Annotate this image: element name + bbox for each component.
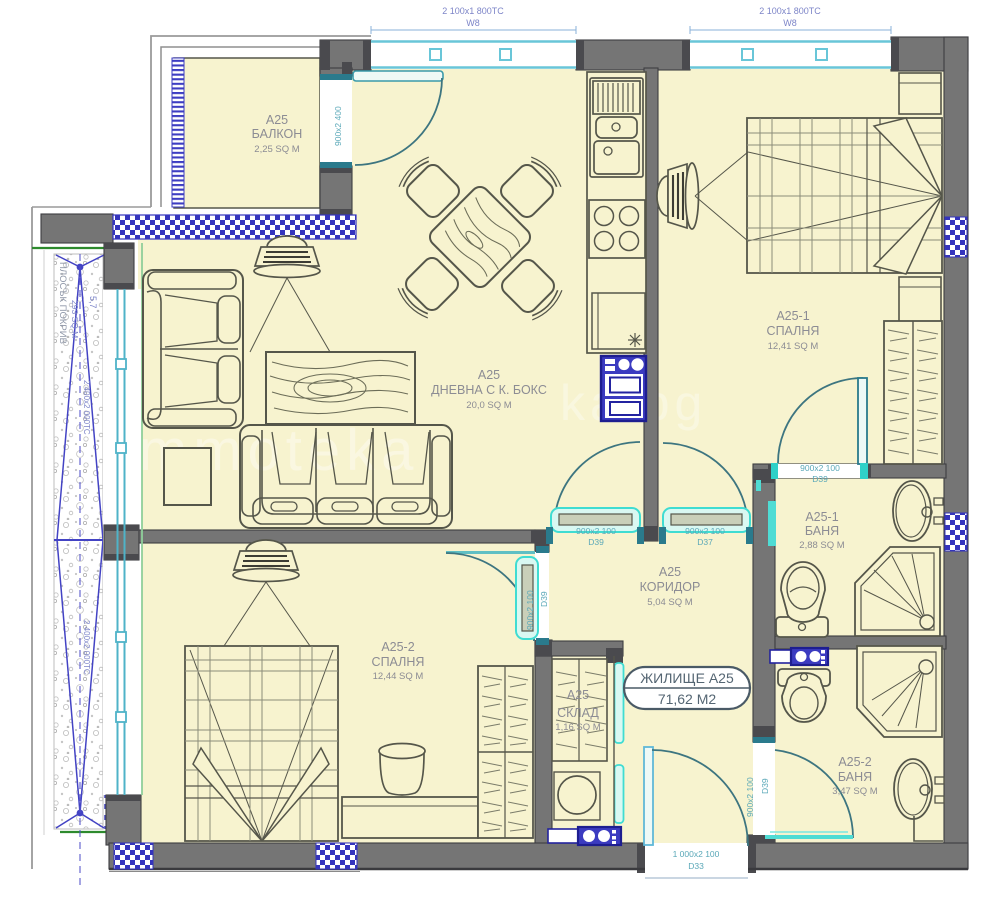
svg-text:1 000x2 100: 1 000x2 100 <box>673 849 720 859</box>
svg-text:D39: D39 <box>539 591 549 607</box>
svg-text:900x2 100: 900x2 100 <box>800 463 840 473</box>
svg-text:900x2 100: 900x2 100 <box>745 777 755 817</box>
svg-text:900x2 100: 900x2 100 <box>525 590 535 630</box>
svg-text:2 400x2 000TC: 2 400x2 000TC <box>82 620 91 675</box>
svg-text:900x2 100: 900x2 100 <box>576 526 616 536</box>
svg-text:3,47 SQ M: 3,47 SQ M <box>832 786 877 797</box>
svg-text:900x2 400: 900x2 400 <box>333 106 343 146</box>
svg-text:СПАЛНЯ: СПАЛНЯ <box>372 655 425 669</box>
svg-text:1,16 SQ M: 1,16 SQ M <box>555 722 600 733</box>
svg-text:2,88 SQ M: 2,88 SQ M <box>799 540 844 551</box>
svg-text:2 100x1 800TC: 2 100x1 800TC <box>442 6 504 16</box>
svg-text:W8: W8 <box>783 18 797 28</box>
svg-text:D39: D39 <box>760 778 770 794</box>
svg-text:БАЛКОН: БАЛКОН <box>252 127 303 141</box>
svg-text:2 100x1 800TC: 2 100x1 800TC <box>759 6 821 16</box>
svg-text:А25-1: А25-1 <box>776 309 809 323</box>
svg-text:БАНЯ: БАНЯ <box>838 770 872 784</box>
svg-text:А25-1: А25-1 <box>805 510 838 524</box>
svg-text:ПЛОСЪК ПОКРИВ: ПЛОСЪК ПОКРИВ <box>57 262 68 344</box>
svg-text:293 SQ M: 293 SQ M <box>70 300 80 338</box>
svg-text:КОРИДОР: КОРИДОР <box>640 580 701 594</box>
svg-text:D39: D39 <box>588 537 604 547</box>
svg-text:20,0 SQ M: 20,0 SQ M <box>466 400 511 411</box>
svg-text:5,7: 5,7 <box>88 296 98 309</box>
svg-text:ЖИЛИЩЕ А25: ЖИЛИЩЕ А25 <box>640 670 734 686</box>
svg-text:71,62 М2: 71,62 М2 <box>658 691 717 707</box>
svg-text:А25-2: А25-2 <box>381 640 414 654</box>
svg-text:D37: D37 <box>697 537 713 547</box>
svg-text:5,04 SQ M: 5,04 SQ M <box>647 597 692 608</box>
svg-text:А25: А25 <box>478 368 500 382</box>
svg-text:12,41 SQ M: 12,41 SQ M <box>768 341 819 352</box>
svg-text:БАНЯ: БАНЯ <box>805 524 839 538</box>
svg-text:СПАЛНЯ: СПАЛНЯ <box>767 324 820 338</box>
svg-text:А25: А25 <box>266 113 288 127</box>
svg-text:2 400x2 000TC: 2 400x2 000TC <box>82 380 91 435</box>
svg-text:А25: А25 <box>567 688 589 702</box>
svg-text:900x2 100: 900x2 100 <box>685 526 725 536</box>
svg-text:А25: А25 <box>659 565 681 579</box>
svg-text:2,25 SQ M: 2,25 SQ M <box>254 144 299 155</box>
svg-text:D33: D33 <box>688 861 704 871</box>
svg-text:W8: W8 <box>466 18 480 28</box>
svg-text:СКЛАД: СКЛАД <box>557 706 599 720</box>
svg-text:А25-2: А25-2 <box>838 755 871 769</box>
svg-text:D39: D39 <box>812 474 828 484</box>
svg-text:12,44 SQ M: 12,44 SQ M <box>373 671 424 682</box>
svg-text:ДНЕВНА С К. БОКС: ДНЕВНА С К. БОКС <box>431 383 547 397</box>
